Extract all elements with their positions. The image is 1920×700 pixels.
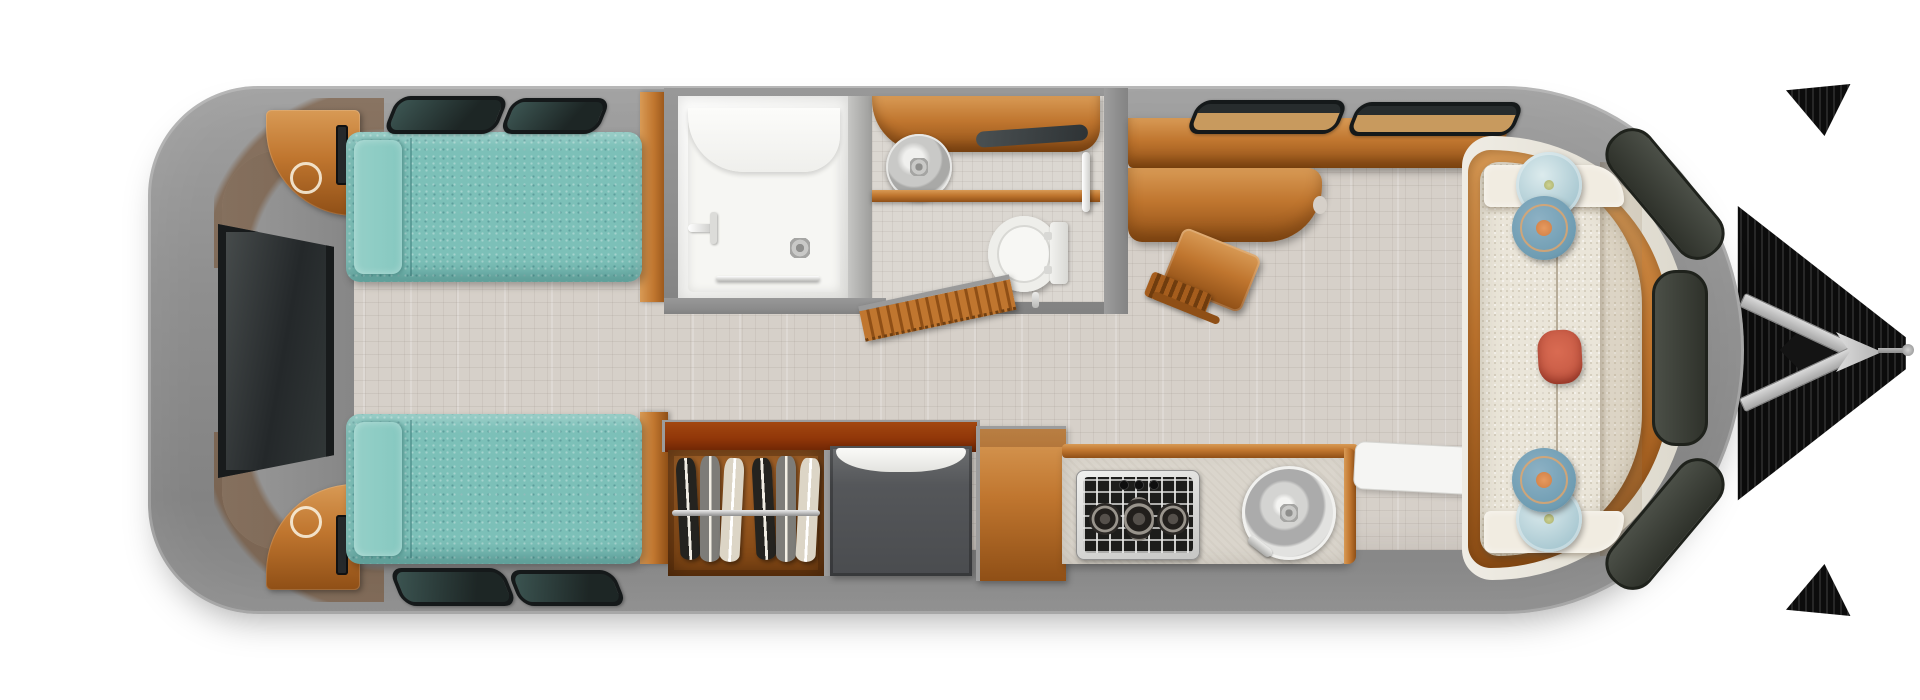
- bed-pillow: [354, 140, 402, 274]
- bed-pillow: [354, 422, 402, 556]
- garment-4: [751, 458, 776, 561]
- shower-valve-stem: [710, 212, 717, 244]
- toilet-hinge: [1044, 232, 1052, 240]
- twin-bed-top: [346, 132, 642, 282]
- burner-2: [1124, 497, 1154, 541]
- kitchen-sink-drain-icon: [1280, 504, 1298, 522]
- floorplan-stage: [0, 0, 1920, 700]
- pillow-button-icon: [1544, 514, 1554, 524]
- tv: [218, 224, 334, 478]
- garment-5: [776, 456, 796, 562]
- entry-mat: [1353, 441, 1475, 495]
- pillow-round-dark-bottom: [1512, 448, 1576, 512]
- bedroom-window-2: [499, 98, 612, 134]
- counter-trim-top: [1062, 444, 1358, 458]
- bedroom-window-1: [382, 96, 509, 134]
- front-window-middle: [1652, 270, 1708, 446]
- pillow-round-dark-top: [1512, 196, 1576, 260]
- kitchen-sink: [1242, 466, 1336, 560]
- garment-1: [675, 458, 700, 561]
- pillow-button-icon: [1536, 220, 1552, 236]
- cup-holder-icon: [290, 162, 322, 194]
- refrigerator-top-panel: [836, 448, 966, 472]
- cooktop: [1076, 470, 1200, 560]
- grab-bar: [1082, 152, 1090, 212]
- toilet-tank: [1050, 222, 1068, 284]
- shower-seat: [688, 108, 840, 172]
- burner-3: [1157, 503, 1189, 535]
- closet-rod: [672, 510, 820, 516]
- hitch-hatch-bottom-corner: [1786, 564, 1856, 616]
- sink-drain-icon: [910, 158, 928, 176]
- washroom: [872, 96, 1104, 302]
- garment-2: [700, 456, 720, 562]
- toilet-hinge: [1044, 266, 1052, 274]
- bedroom-window-4: [507, 570, 628, 606]
- twin-bed-bottom: [346, 414, 642, 564]
- front-wall-window-1: [1185, 100, 1349, 134]
- cooktop-knob-2: [1134, 480, 1144, 490]
- burner-1: [1089, 503, 1121, 535]
- shower-washroom-divider: [848, 96, 872, 302]
- cooktop-knob-3: [1149, 480, 1159, 490]
- front-wall-window-2: [1345, 102, 1525, 136]
- bed-seam: [410, 420, 412, 558]
- bathroom-bottom-wall: [664, 298, 886, 314]
- shower-room: [678, 96, 848, 302]
- vanity-edge-strip: [872, 190, 1100, 202]
- bathroom-right-wall: [1104, 88, 1128, 314]
- bedroom-window-3: [388, 568, 517, 606]
- towel-bar: [716, 276, 820, 281]
- desk-cup-notch: [1313, 196, 1327, 214]
- pillow-lumbar: [1537, 329, 1584, 385]
- cooktop-knob-1: [1119, 480, 1129, 490]
- desk-table: [1128, 168, 1322, 242]
- cup-holder-icon: [290, 506, 322, 538]
- hitch-jack-knob: [1902, 344, 1914, 356]
- shower-drain-icon: [790, 238, 810, 258]
- hitch-hatch-top-corner: [1786, 84, 1856, 136]
- pillow-button-icon: [1544, 180, 1554, 190]
- pillow-button-icon: [1536, 472, 1552, 488]
- refrigerator: [830, 446, 972, 576]
- toilet-flush-pedal: [1032, 292, 1039, 308]
- wardrobe-closet: [668, 450, 824, 576]
- bed-seam: [410, 138, 412, 276]
- galley-cabinet: [976, 426, 1066, 581]
- sofa-back-cushion: [1600, 162, 1642, 556]
- shower-pan: [688, 108, 840, 292]
